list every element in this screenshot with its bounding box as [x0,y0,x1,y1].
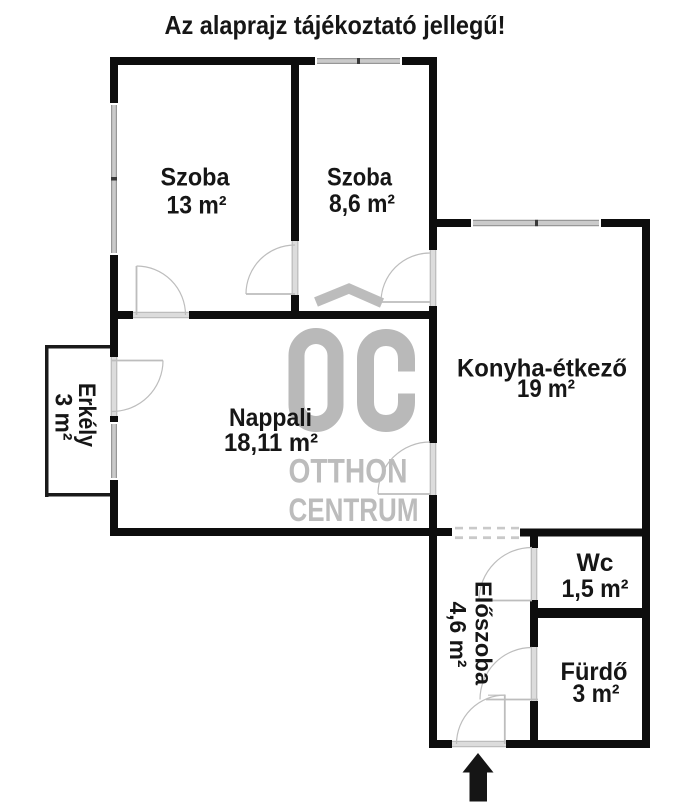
svg-text:Szoba: Szoba [327,164,393,192]
svg-text:Az alaprajz tájékoztató jelleg: Az alaprajz tájékoztató jellegű! [165,10,506,40]
svg-text:3 m²: 3 m² [50,394,77,441]
svg-text:3 m²: 3 m² [573,680,620,708]
svg-text:CENTRUM: CENTRUM [289,492,419,528]
svg-text:Nappali: Nappali [229,404,312,432]
svg-text:8,6 m²: 8,6 m² [329,190,395,218]
svg-text:1,5 m²: 1,5 m² [562,575,629,603]
svg-text:OTTHON: OTTHON [289,453,408,491]
svg-text:13 m²: 13 m² [167,192,227,220]
svg-text:4,6 m²: 4,6 m² [445,602,471,668]
svg-text:Wc: Wc [577,549,614,577]
svg-text:Szoba: Szoba [161,164,231,192]
svg-text:19 m²: 19 m² [517,375,575,403]
svg-text:18,11 m²: 18,11 m² [224,429,318,457]
svg-text:Előszoba: Előszoba [471,581,497,685]
